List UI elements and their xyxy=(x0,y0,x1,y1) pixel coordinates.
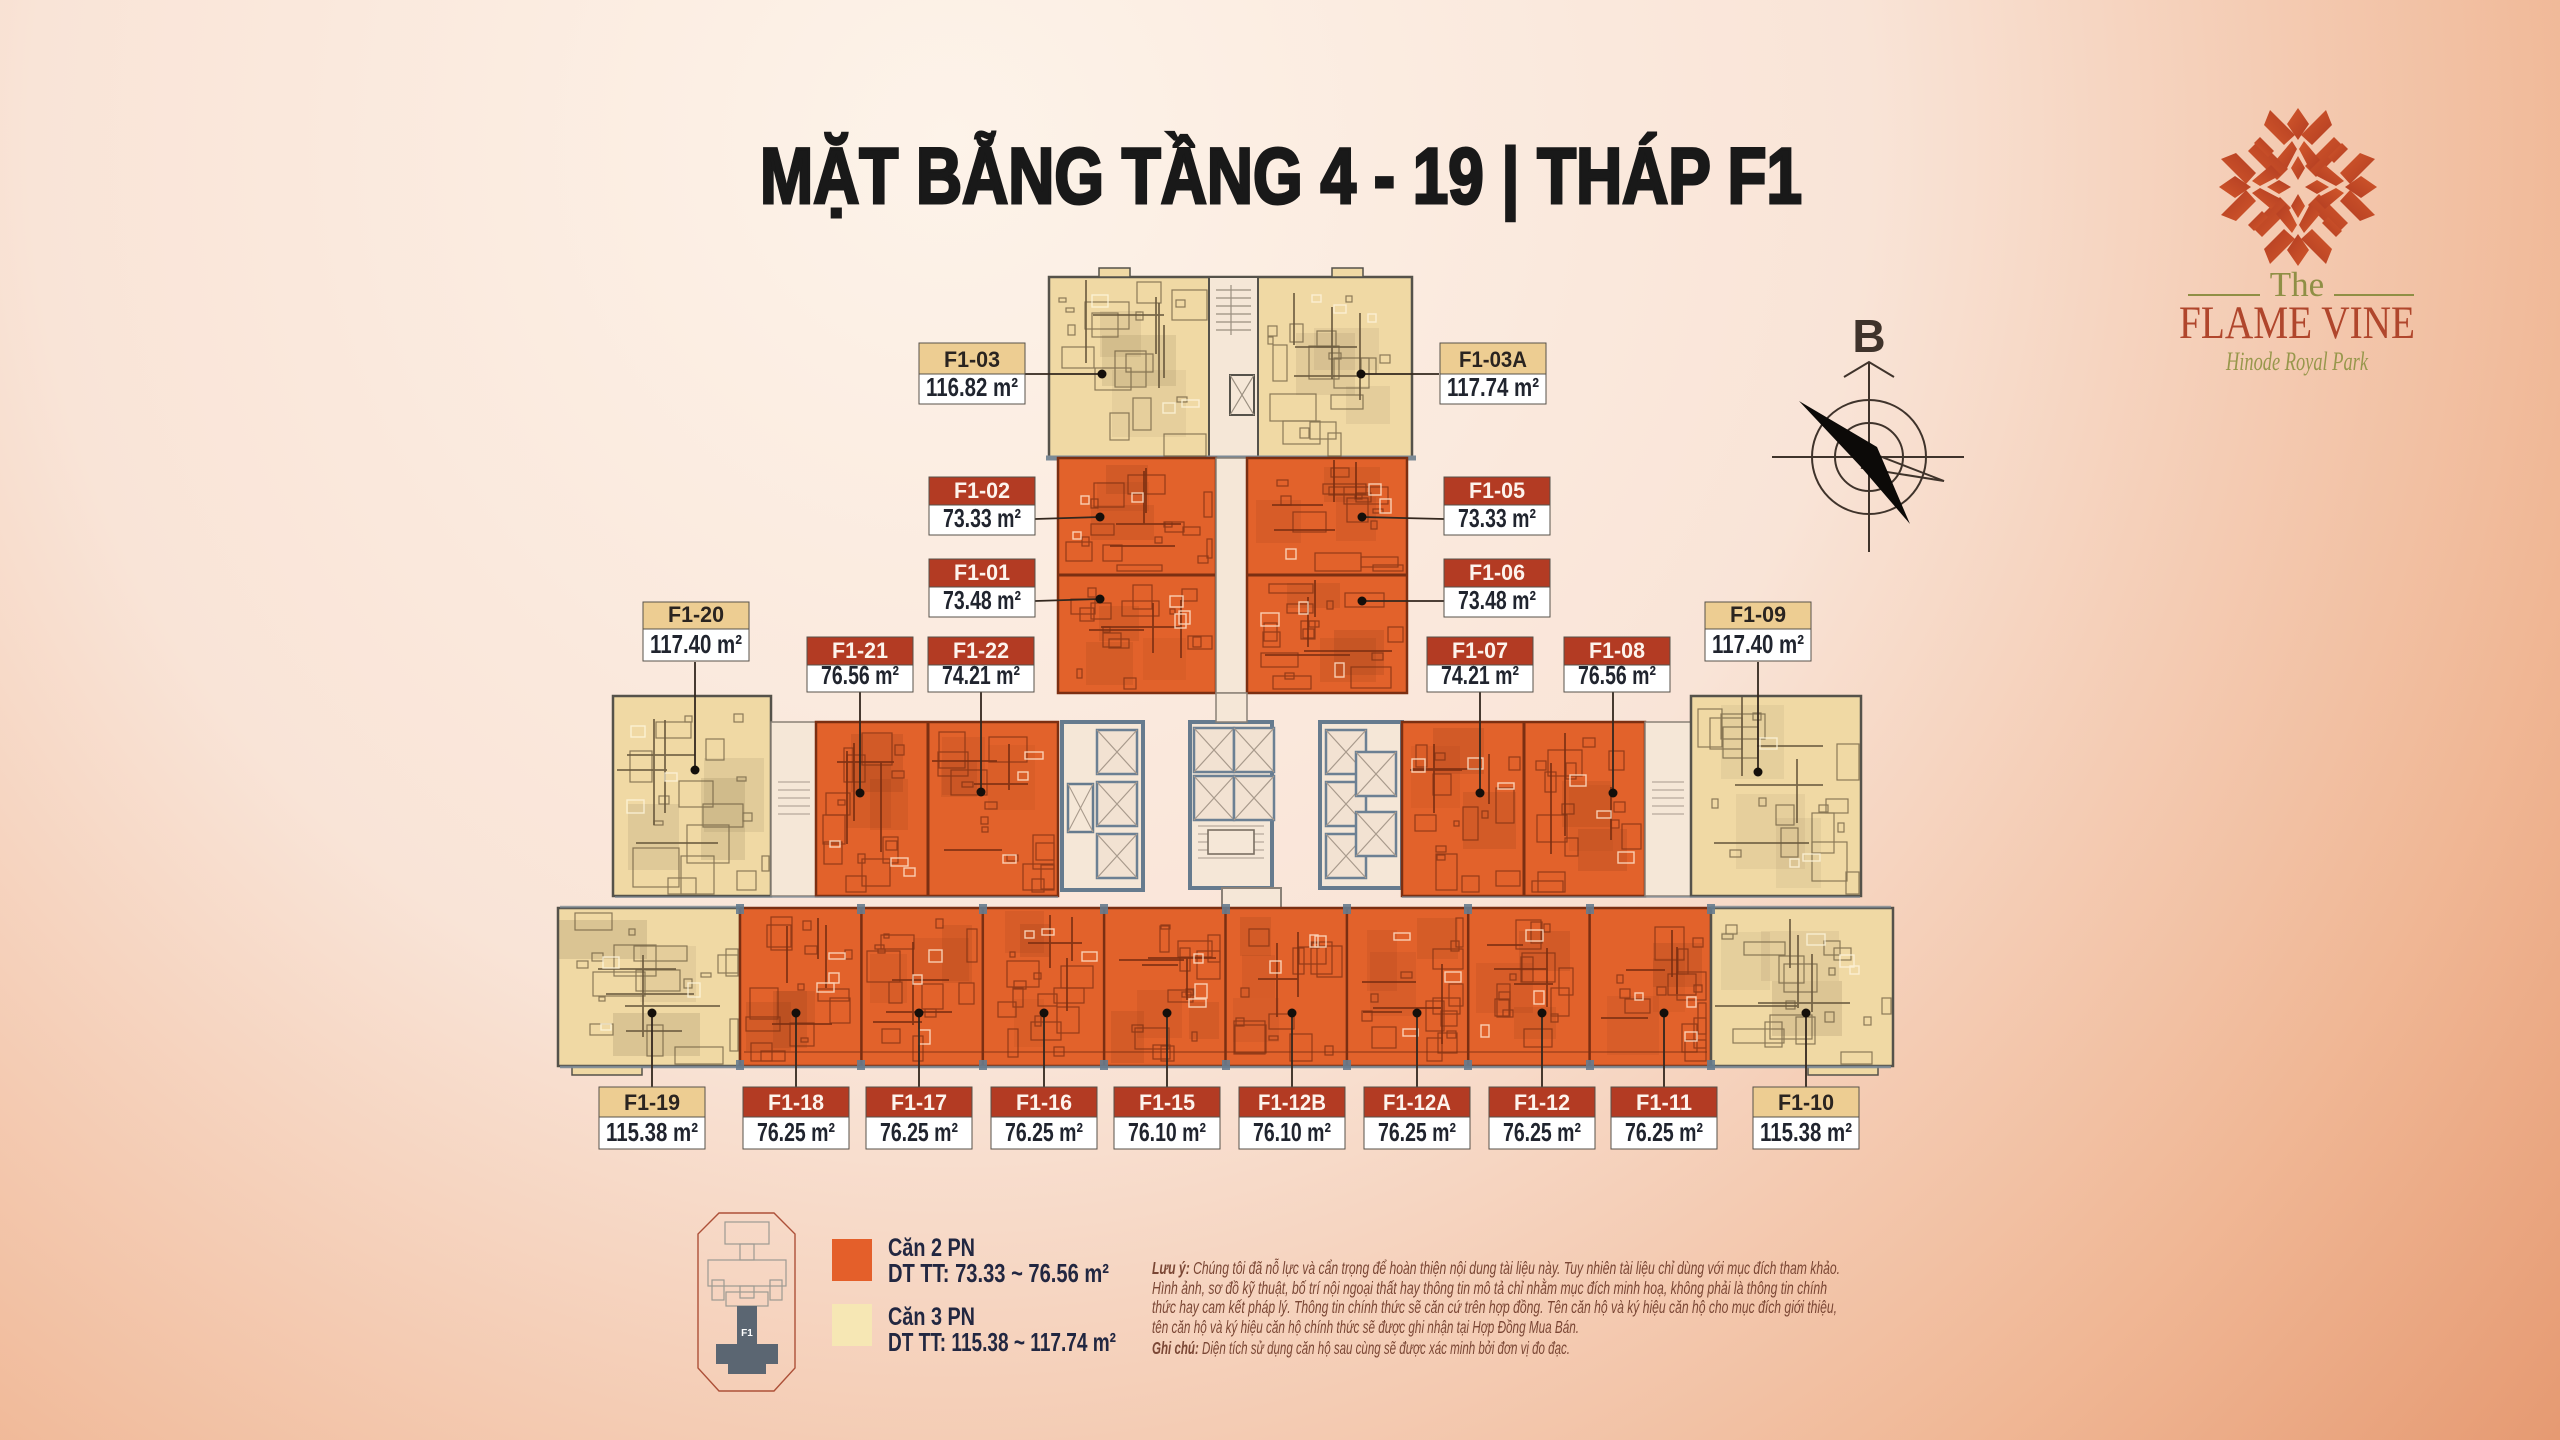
svg-text:tên căn hộ và ký hiệu căn hộ c: tên căn hộ và ký hiệu căn hộ chính thức … xyxy=(1152,1317,1579,1337)
svg-text:F1-15: F1-15 xyxy=(1139,1090,1195,1115)
svg-text:F1-01: F1-01 xyxy=(954,560,1010,585)
svg-text:F1-02: F1-02 xyxy=(954,478,1010,503)
svg-text:74.21 m²: 74.21 m² xyxy=(1441,660,1519,690)
svg-text:117.74 m²: 117.74 m² xyxy=(1447,372,1539,402)
svg-text:F1-05: F1-05 xyxy=(1469,478,1525,503)
svg-text:Ghi chú: Diện tích sử dụng căn: Ghi chú: Diện tích sử dụng căn hộ sau cù… xyxy=(1152,1338,1570,1358)
svg-text:F1-18: F1-18 xyxy=(768,1090,824,1115)
svg-text:F1-16: F1-16 xyxy=(1016,1090,1072,1115)
svg-text:76.25 m²: 76.25 m² xyxy=(1005,1117,1083,1147)
svg-text:F1-03A: F1-03A xyxy=(1459,347,1527,372)
svg-text:F1-19: F1-19 xyxy=(624,1090,680,1115)
svg-text:F1-12B: F1-12B xyxy=(1258,1090,1326,1115)
svg-text:73.48 m²: 73.48 m² xyxy=(943,585,1021,615)
svg-text:F1-12: F1-12 xyxy=(1514,1090,1570,1115)
svg-text:FLAME VINE: FLAME VINE xyxy=(2179,297,2415,349)
svg-text:116.82 m²: 116.82 m² xyxy=(926,372,1018,402)
svg-text:Hình ảnh, sơ đồ kỹ thuật, bố t: Hình ảnh, sơ đồ kỹ thuật, bố trí nội ngo… xyxy=(1152,1278,1827,1298)
svg-text:73.33 m²: 73.33 m² xyxy=(1458,503,1536,533)
svg-text:76.10 m²: 76.10 m² xyxy=(1253,1117,1331,1147)
svg-text:Lưu ý: Chúng tôi đã nỗ lực và: Lưu ý: Chúng tôi đã nỗ lực và cẩn trọng … xyxy=(1152,1258,1840,1278)
svg-text:76.25 m²: 76.25 m² xyxy=(880,1117,958,1147)
svg-text:73.33 m²: 73.33 m² xyxy=(943,503,1021,533)
svg-text:B: B xyxy=(1852,310,1885,362)
svg-text:73.48 m²: 73.48 m² xyxy=(1458,585,1536,615)
svg-text:76.10 m²: 76.10 m² xyxy=(1128,1117,1206,1147)
svg-text:DT TT: 73.33 ~ 76.56 m²: DT TT: 73.33 ~ 76.56 m² xyxy=(888,1258,1109,1288)
svg-text:DT TT: 115.38 ~ 117.74 m²: DT TT: 115.38 ~ 117.74 m² xyxy=(888,1327,1116,1357)
svg-text:74.21 m²: 74.21 m² xyxy=(942,660,1020,690)
svg-text:76.25 m²: 76.25 m² xyxy=(757,1117,835,1147)
svg-text:F1-03: F1-03 xyxy=(944,347,1000,372)
svg-text:F1-12A: F1-12A xyxy=(1383,1090,1451,1115)
svg-text:76.56 m²: 76.56 m² xyxy=(821,660,899,690)
svg-text:F1-06: F1-06 xyxy=(1469,560,1525,585)
svg-text:F1-11: F1-11 xyxy=(1636,1090,1692,1115)
svg-text:F1-10: F1-10 xyxy=(1778,1090,1834,1115)
svg-text:76.56 m²: 76.56 m² xyxy=(1578,660,1656,690)
svg-text:115.38 m²: 115.38 m² xyxy=(1760,1117,1852,1147)
svg-text:F1-20: F1-20 xyxy=(668,602,724,627)
svg-text:Hinode Royal Park: Hinode Royal Park xyxy=(2225,347,2368,376)
svg-text:F1-09: F1-09 xyxy=(1730,602,1786,627)
svg-text:76.25 m²: 76.25 m² xyxy=(1625,1117,1703,1147)
svg-text:F1-17: F1-17 xyxy=(891,1090,947,1115)
svg-text:76.25 m²: 76.25 m² xyxy=(1378,1117,1456,1147)
svg-text:thức hay cam kết pháp lý. Thôn: thức hay cam kết pháp lý. Thông tin chín… xyxy=(1152,1297,1837,1317)
svg-text:117.40 m²: 117.40 m² xyxy=(650,629,742,659)
svg-text:76.25 m²: 76.25 m² xyxy=(1503,1117,1581,1147)
svg-text:115.38 m²: 115.38 m² xyxy=(606,1117,698,1147)
svg-text:F1: F1 xyxy=(741,1328,753,1339)
svg-text:117.40 m²: 117.40 m² xyxy=(1712,629,1804,659)
svg-text:MẶT BẴNG TẦNG 4 - 19 | THÁP F1: MẶT BẴNG TẦNG 4 - 19 | THÁP F1 xyxy=(760,131,1802,221)
